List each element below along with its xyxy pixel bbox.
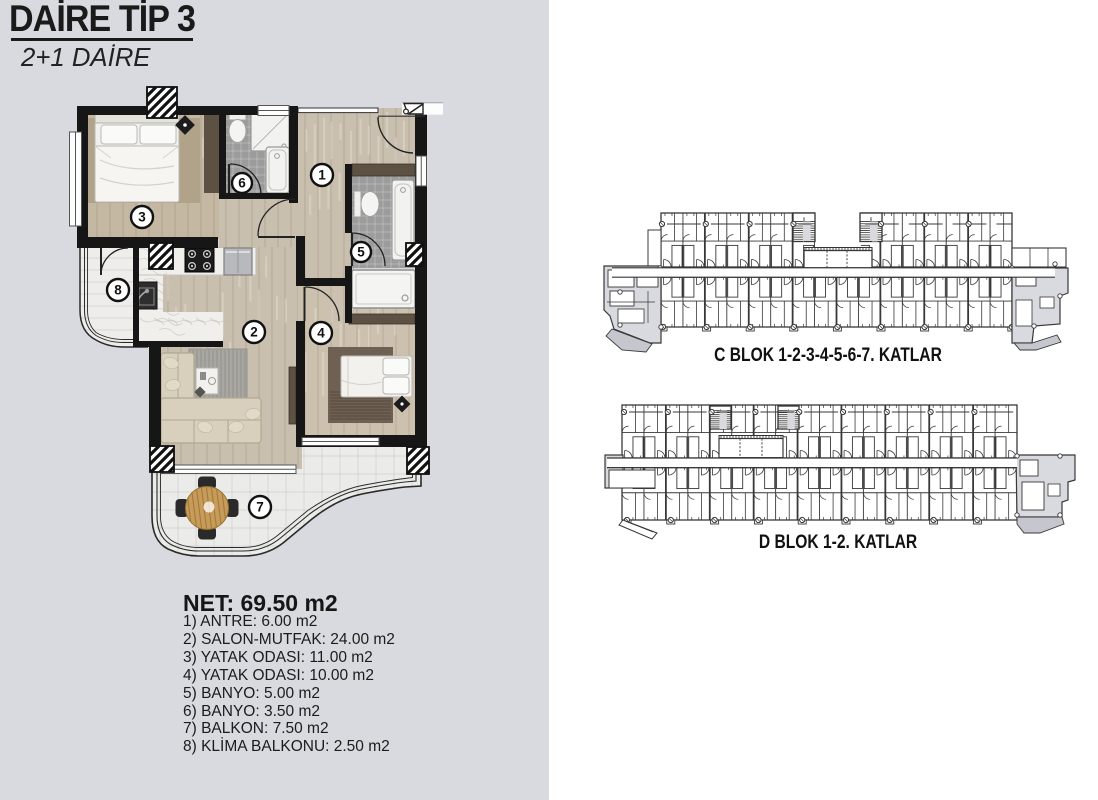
svg-text:6: 6 (238, 176, 246, 191)
svg-text:7: 7 (256, 500, 264, 515)
svg-text:8: 8 (114, 283, 122, 298)
svg-text:4: 4 (317, 326, 325, 341)
svg-text:3: 3 (138, 210, 146, 225)
svg-text:5: 5 (357, 245, 365, 260)
svg-text:1: 1 (318, 168, 326, 183)
svg-text:2: 2 (250, 325, 258, 340)
